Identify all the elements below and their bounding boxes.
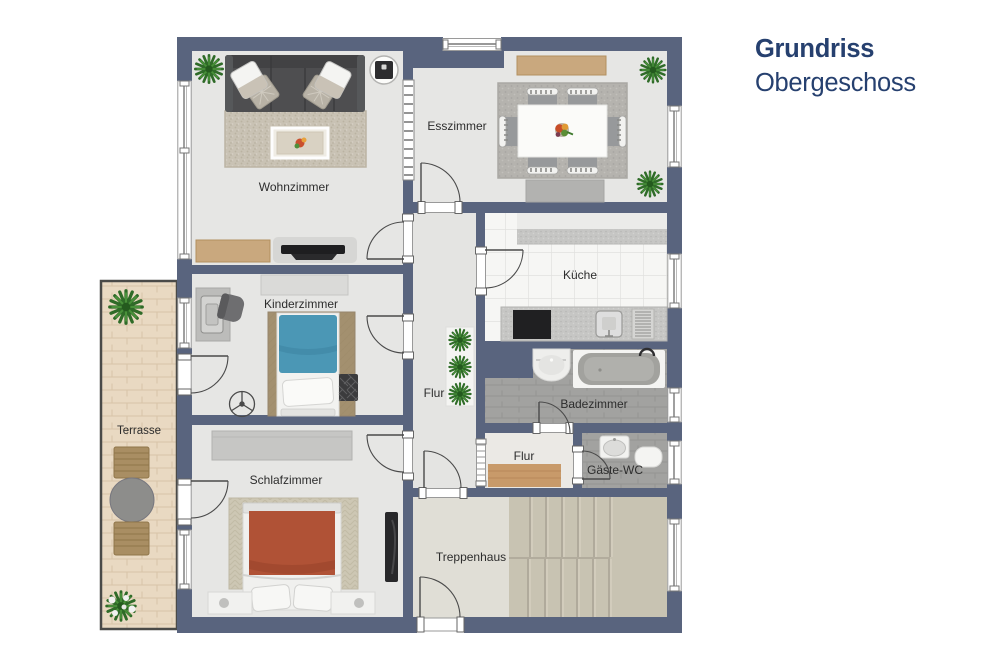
svg-text:Esszimmer: Esszimmer (427, 119, 486, 133)
svg-text:Gäste-WC: Gäste-WC (587, 463, 643, 477)
svg-text:Flur: Flur (424, 386, 445, 400)
svg-text:Treppenhaus: Treppenhaus (436, 550, 506, 564)
svg-text:Badezimmer: Badezimmer (560, 397, 627, 411)
svg-text:Flur: Flur (514, 449, 535, 463)
svg-text:Grundriss: Grundriss (755, 35, 874, 63)
svg-text:Terrasse: Terrasse (117, 425, 161, 437)
svg-text:Kinderzimmer: Kinderzimmer (264, 297, 338, 311)
svg-text:Schlafzimmer: Schlafzimmer (250, 473, 323, 487)
svg-text:Obergeschoss: Obergeschoss (755, 69, 916, 97)
svg-text:Wohnzimmer: Wohnzimmer (259, 180, 329, 194)
svg-text:Küche: Küche (563, 268, 597, 282)
